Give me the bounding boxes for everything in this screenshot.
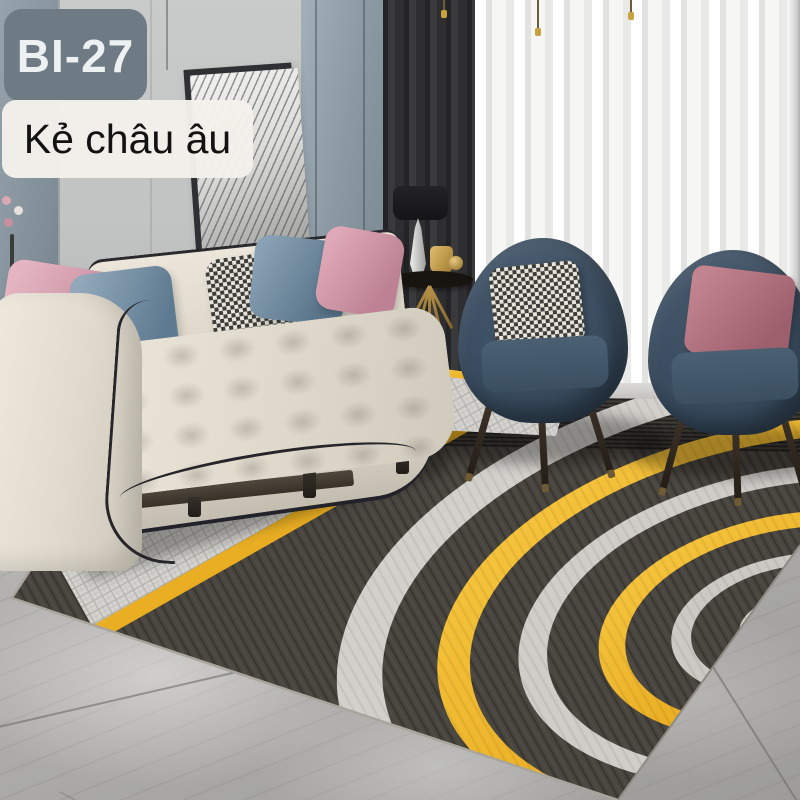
product-code-badge: BI-27 [4,9,147,102]
armchair-left [458,238,628,508]
chair-seat-cushion [481,335,609,394]
product-name-badge: Kẻ châu âu [2,100,253,178]
living-room-product-photo: BI-27 Kẻ châu âu [0,0,800,800]
chair-leg [586,402,615,479]
chair-leg [538,414,549,492]
chair-seat-cushion [671,347,799,406]
chair-leg [658,419,685,496]
chair-leg [732,428,742,506]
chair-leg [780,416,800,493]
sofa-pillow-pink [313,224,406,321]
product-name-text: Kẻ châu âu [24,116,231,163]
chair-leg [465,405,493,482]
product-code-text: BI-27 [17,29,134,83]
armchair-right [648,250,800,520]
table-lamp-shade [393,186,448,220]
